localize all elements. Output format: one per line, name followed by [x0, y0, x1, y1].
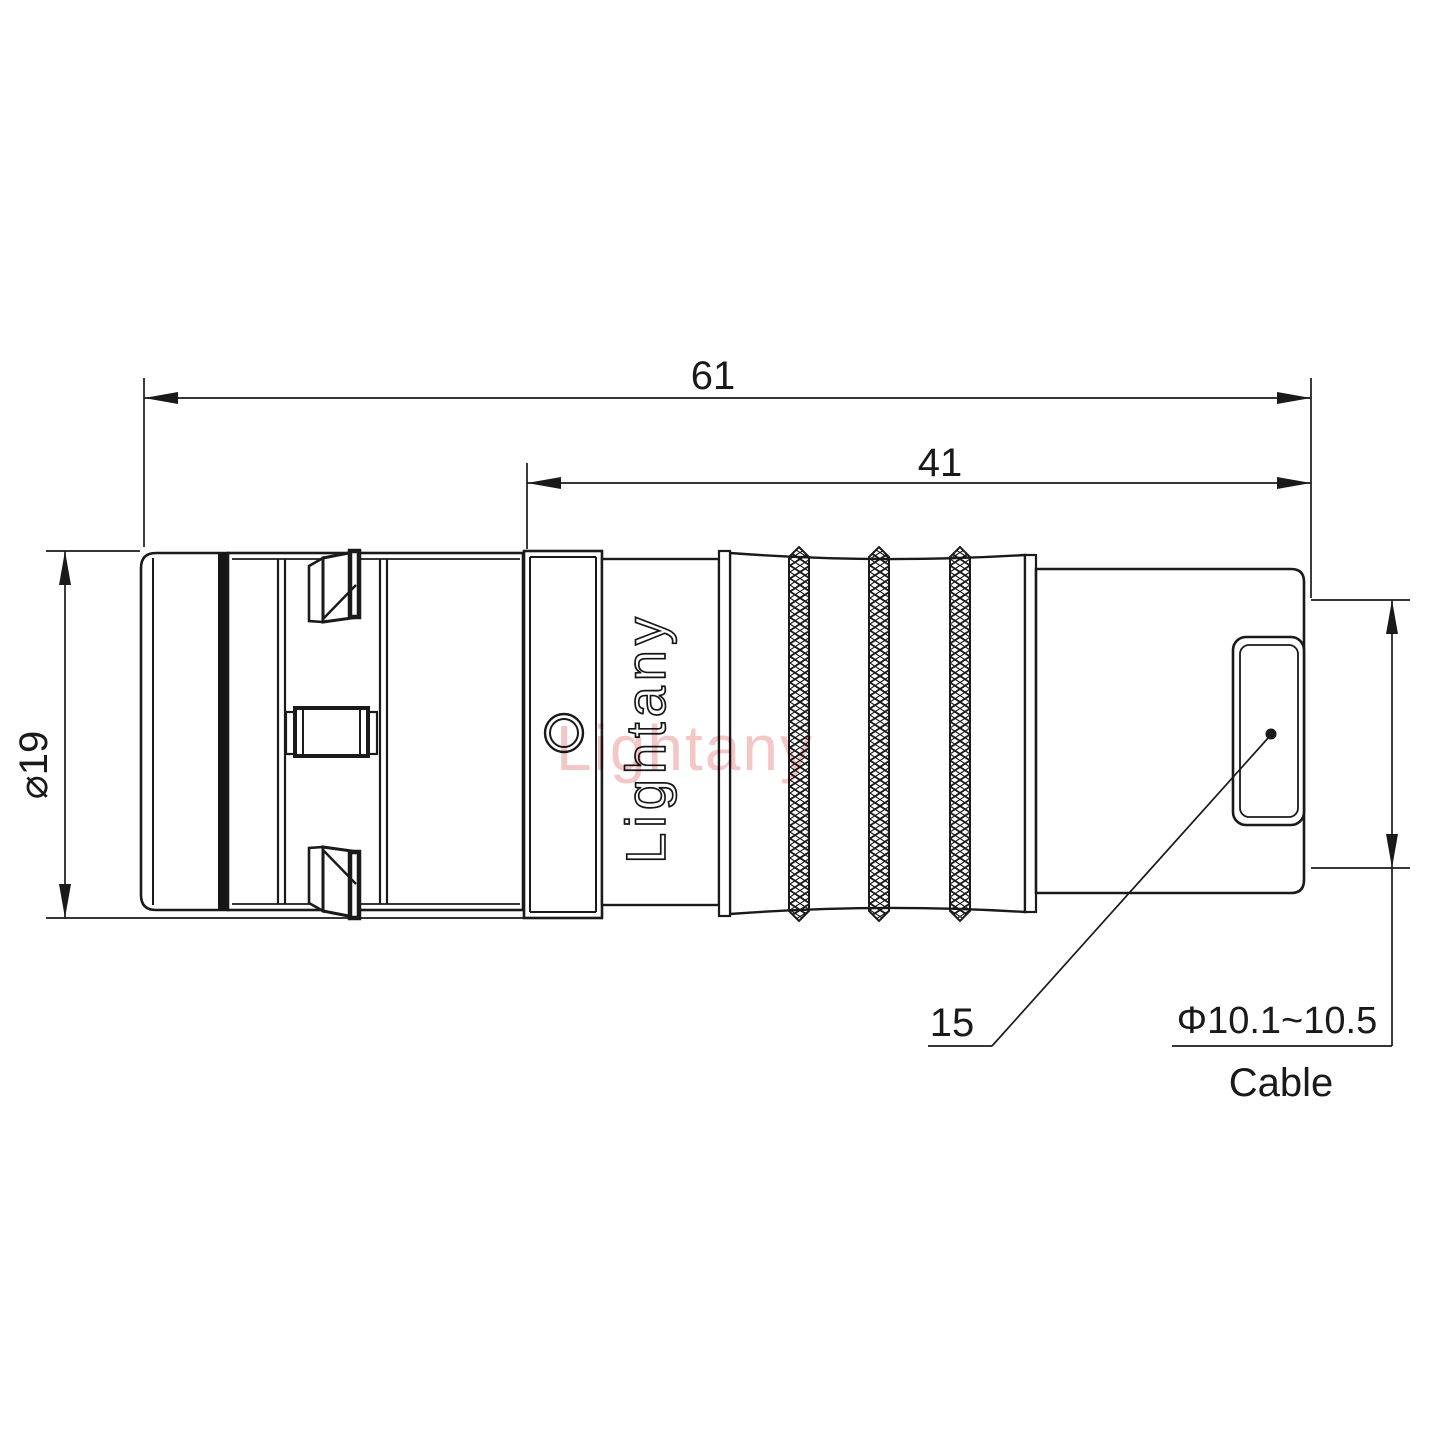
latch-bottom — [309, 847, 359, 918]
release-button — [286, 708, 377, 756]
latch-top — [309, 551, 359, 622]
dim-cable-range-text: Φ10.1~10.5 — [1177, 1000, 1377, 1042]
front-shell — [141, 553, 228, 910]
arrow-down-icon — [1386, 834, 1398, 868]
arrow-up-icon — [59, 551, 71, 585]
brand-watermark-text: Lightany — [556, 712, 814, 784]
arrow-up-icon — [1386, 600, 1398, 634]
arrow-right-icon — [1277, 392, 1311, 404]
dim-cable-label-text: Cable — [1229, 1061, 1334, 1105]
arrow-left-icon — [144, 392, 178, 404]
arrow-left-icon — [527, 477, 561, 489]
dim-front-diameter-text: ⌀19 — [12, 731, 56, 800]
connector-technical-drawing: 61 41 ⌀19 Φ10.1~10.5 Cable 15 Lightany L… — [0, 0, 1440, 1440]
seal-band — [218, 553, 228, 910]
dim-rear-length-text: 41 — [918, 441, 963, 485]
knurl-band-3 — [950, 547, 970, 921]
technical-drawing-canvas: 61 41 ⌀19 Φ10.1~10.5 Cable 15 Lightany L… — [0, 0, 1440, 1440]
dim-overall-length-text: 61 — [691, 354, 736, 398]
arrow-down-icon — [59, 884, 71, 918]
leader-ref-number-text: 15 — [930, 1001, 975, 1045]
arrow-right-icon — [1277, 477, 1311, 489]
cable-entry-cutout — [1233, 637, 1304, 825]
grip-right-rib — [1025, 555, 1036, 912]
knurl-band-2 — [869, 547, 889, 921]
